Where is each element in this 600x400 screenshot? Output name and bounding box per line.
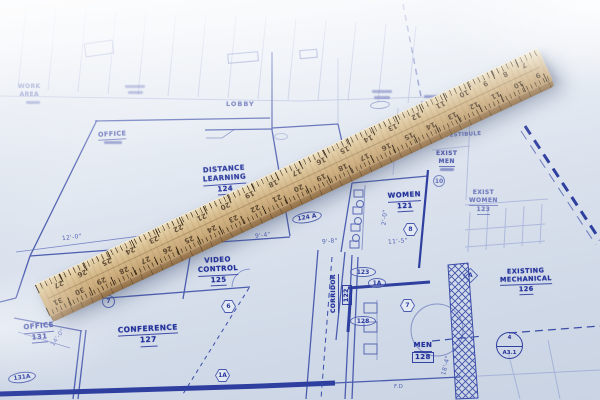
illegible-text <box>374 96 390 99</box>
illegible-text <box>372 90 392 93</box>
illegible-text <box>104 141 122 144</box>
illegible-text <box>424 95 442 98</box>
door-tag-blank <box>274 133 288 140</box>
illegible-text <box>440 168 454 171</box>
illegible-text <box>26 101 40 104</box>
keynote-circle-7: 7 <box>102 295 115 308</box>
section-marker: 4 A3.1 <box>496 332 523 359</box>
illegible-text <box>125 85 145 88</box>
illegible-text <box>128 91 143 94</box>
keynote-circle-10: 10 <box>433 175 445 187</box>
blueprint-photo: WORK AREA OFFICE LOBBY DISTANCE LEARNING… <box>0 0 600 400</box>
